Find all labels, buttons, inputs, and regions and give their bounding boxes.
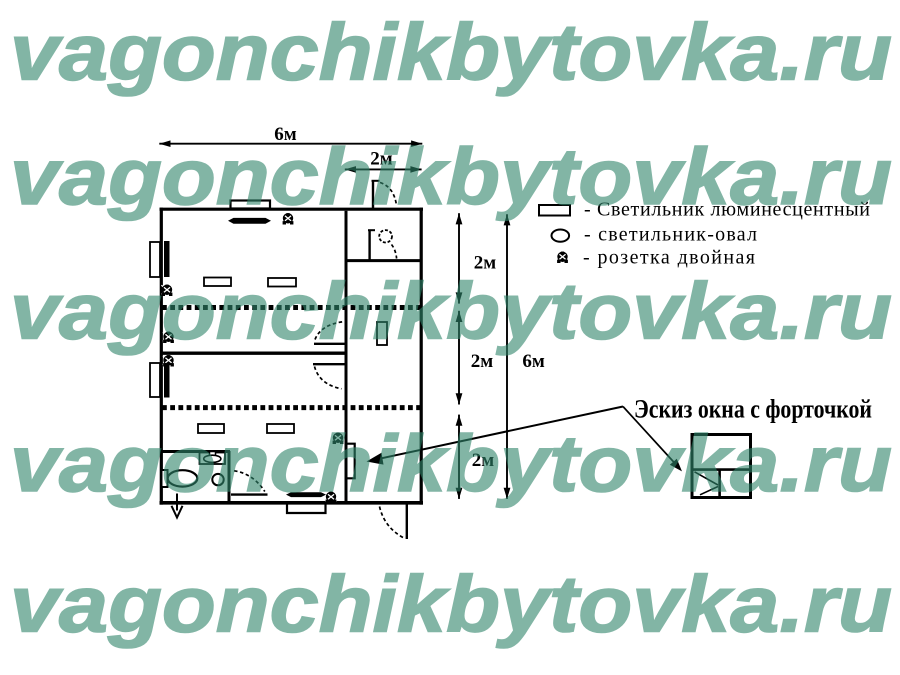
- svg-text:- розетка двойная: - розетка двойная: [583, 247, 755, 269]
- svg-text:vagonchikbytovka.ru: vagonchikbytovka.ru: [10, 132, 892, 221]
- svg-text:vagonchikbytovka.ru: vagonchikbytovka.ru: [10, 8, 892, 97]
- svg-text:vagonchikbytovka.ru: vagonchikbytovka.ru: [10, 267, 892, 356]
- svg-text:vagonchikbytovka.ru: vagonchikbytovka.ru: [10, 419, 892, 508]
- svg-text:- светильник-овал: - светильник-овал: [584, 223, 757, 245]
- svg-text:vagonchikbytovka.ru: vagonchikbytovka.ru: [10, 560, 892, 649]
